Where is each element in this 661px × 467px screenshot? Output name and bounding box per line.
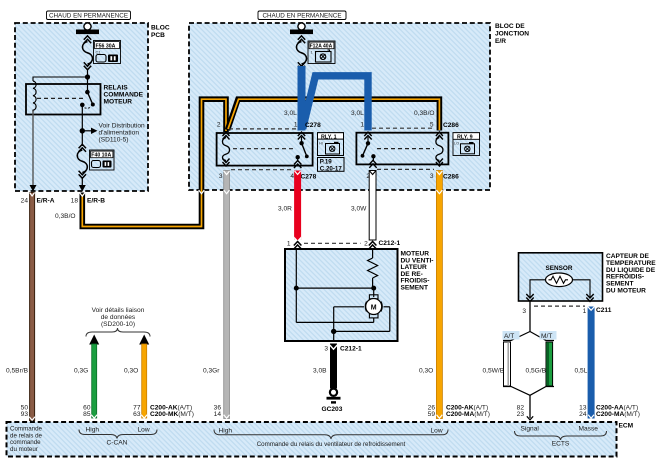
svg-text:2: 2 [217, 122, 221, 129]
svg-text:0,5W/B: 0,5W/B [483, 368, 505, 375]
svg-text:1: 1 [294, 122, 298, 129]
svg-text:F56 30A: F56 30A [96, 43, 116, 49]
svg-text:0,3B/O: 0,3B/O [414, 110, 435, 117]
svg-text:14: 14 [214, 411, 222, 418]
svg-text:3: 3 [430, 173, 434, 180]
svg-text:M/T: M/T [541, 333, 552, 340]
svg-text:RLY. 9: RLY. 9 [457, 134, 473, 140]
svg-text:LO: LO [454, 141, 459, 145]
svg-text:(SD200-10): (SD200-10) [101, 321, 135, 328]
svg-text:C200-MA(M/T): C200-MA(M/T) [596, 411, 640, 418]
svg-text:24: 24 [21, 198, 29, 205]
svg-text:0,3B/O: 0,3B/O [55, 213, 76, 220]
svg-text:2: 2 [364, 241, 368, 248]
svg-text:93: 93 [21, 411, 29, 418]
svg-text:0,5Br/B: 0,5Br/B [6, 368, 29, 375]
svg-text:Voir Distribution: Voir Distribution [99, 123, 146, 130]
svg-text:18: 18 [71, 198, 79, 205]
svg-text:0,3G: 0,3G [74, 368, 88, 375]
svg-text:3,0W: 3,0W [351, 206, 367, 213]
svg-text:3,0R: 3,0R [278, 206, 292, 213]
svg-text:C.20-17: C.20-17 [320, 165, 343, 172]
svg-text:DU MOTEUR: DU MOTEUR [606, 288, 646, 295]
svg-text:E/R: E/R [495, 38, 506, 45]
svg-text:ECM: ECM [619, 423, 634, 430]
svg-text:SEMENT: SEMENT [401, 285, 428, 292]
svg-text:Masse: Masse [579, 426, 599, 433]
svg-text:4: 4 [290, 173, 294, 180]
svg-text:63: 63 [133, 411, 141, 418]
svg-text:1: 1 [583, 308, 587, 315]
svg-text:Voir détails liaison: Voir détails liaison [92, 307, 145, 314]
svg-text:ECTS: ECTS [552, 441, 570, 448]
svg-text:C278: C278 [305, 122, 321, 129]
svg-text:High: High [86, 427, 100, 434]
svg-text:C200-MK(M/T): C200-MK(M/T) [150, 411, 194, 418]
svg-text:BLOC: BLOC [151, 25, 170, 32]
svg-text:F40 10A: F40 10A [91, 153, 111, 159]
svg-text:C211: C211 [596, 307, 612, 314]
svg-text:MOTEUR: MOTEUR [104, 98, 133, 105]
svg-text:CHAUD EN PERMANENCE: CHAUD EN PERMANENCE [262, 13, 341, 20]
svg-text:(SD110-5): (SD110-5) [99, 137, 129, 144]
svg-text:Low: Low [431, 428, 443, 435]
svg-text:RLY. 1: RLY. 1 [321, 134, 337, 140]
svg-text:RELAIS: RELAIS [104, 84, 129, 91]
svg-text:23: 23 [517, 411, 525, 418]
svg-text:0,5G/B: 0,5G/B [526, 368, 547, 375]
svg-text:SENSOR: SENSOR [546, 265, 573, 272]
svg-text:C200-MA(M/T): C200-MA(M/T) [446, 411, 490, 418]
svg-text:BLOC DE: BLOC DE [495, 23, 525, 30]
svg-text:3: 3 [324, 346, 328, 353]
svg-text:0,3O: 0,3O [124, 368, 138, 375]
svg-text:Low: Low [138, 427, 150, 434]
svg-text:C286: C286 [443, 173, 459, 180]
svg-text:3,0B: 3,0B [313, 368, 327, 375]
svg-text:5: 5 [430, 122, 434, 129]
svg-text:3,0L: 3,0L [284, 110, 297, 117]
svg-text:C-CAN: C-CAN [107, 440, 128, 447]
svg-text:E/R-A: E/R-A [37, 198, 55, 205]
svg-text:Commande du relais du ventilat: Commande du relais du ventilateur de ref… [257, 441, 406, 448]
svg-text:C286: C286 [443, 122, 459, 129]
svg-text:du moteur: du moteur [10, 446, 38, 453]
svg-text:GC203: GC203 [322, 406, 343, 413]
svg-text:0,5L: 0,5L [575, 368, 588, 375]
svg-text:C212-1: C212-1 [340, 346, 362, 353]
svg-text:1: 1 [287, 241, 291, 248]
svg-text:24: 24 [579, 411, 587, 418]
svg-text:1: 1 [360, 122, 364, 129]
svg-text:A/T: A/T [504, 333, 514, 340]
svg-text:HI: HI [319, 141, 323, 145]
svg-text:COMMANDE: COMMANDE [104, 91, 144, 98]
svg-text:High: High [219, 428, 233, 435]
svg-text:3: 3 [522, 308, 526, 315]
svg-text:E/R-B: E/R-B [87, 198, 105, 205]
svg-text:85: 85 [83, 411, 91, 418]
svg-text:JONCTION: JONCTION [495, 31, 529, 38]
svg-text:3: 3 [219, 173, 223, 180]
svg-text:0,3Gr: 0,3Gr [203, 368, 220, 375]
svg-text:d'alimentation: d'alimentation [99, 130, 140, 137]
svg-text:C212-1: C212-1 [379, 240, 401, 247]
svg-text:PCB: PCB [151, 32, 165, 39]
svg-text:Signal: Signal [521, 426, 540, 433]
svg-text:0,3O: 0,3O [419, 368, 433, 375]
svg-text:F12A 40A: F12A 40A [310, 44, 333, 50]
svg-text:3,0L: 3,0L [351, 110, 364, 117]
svg-text:59: 59 [428, 411, 436, 418]
svg-text:CHAUD EN PERMANENCE: CHAUD EN PERMANENCE [49, 13, 128, 20]
svg-text:M: M [371, 304, 377, 311]
svg-text:de données: de données [101, 314, 136, 321]
svg-text:C1: C1 [96, 50, 102, 55]
svg-text:C278: C278 [301, 173, 317, 180]
